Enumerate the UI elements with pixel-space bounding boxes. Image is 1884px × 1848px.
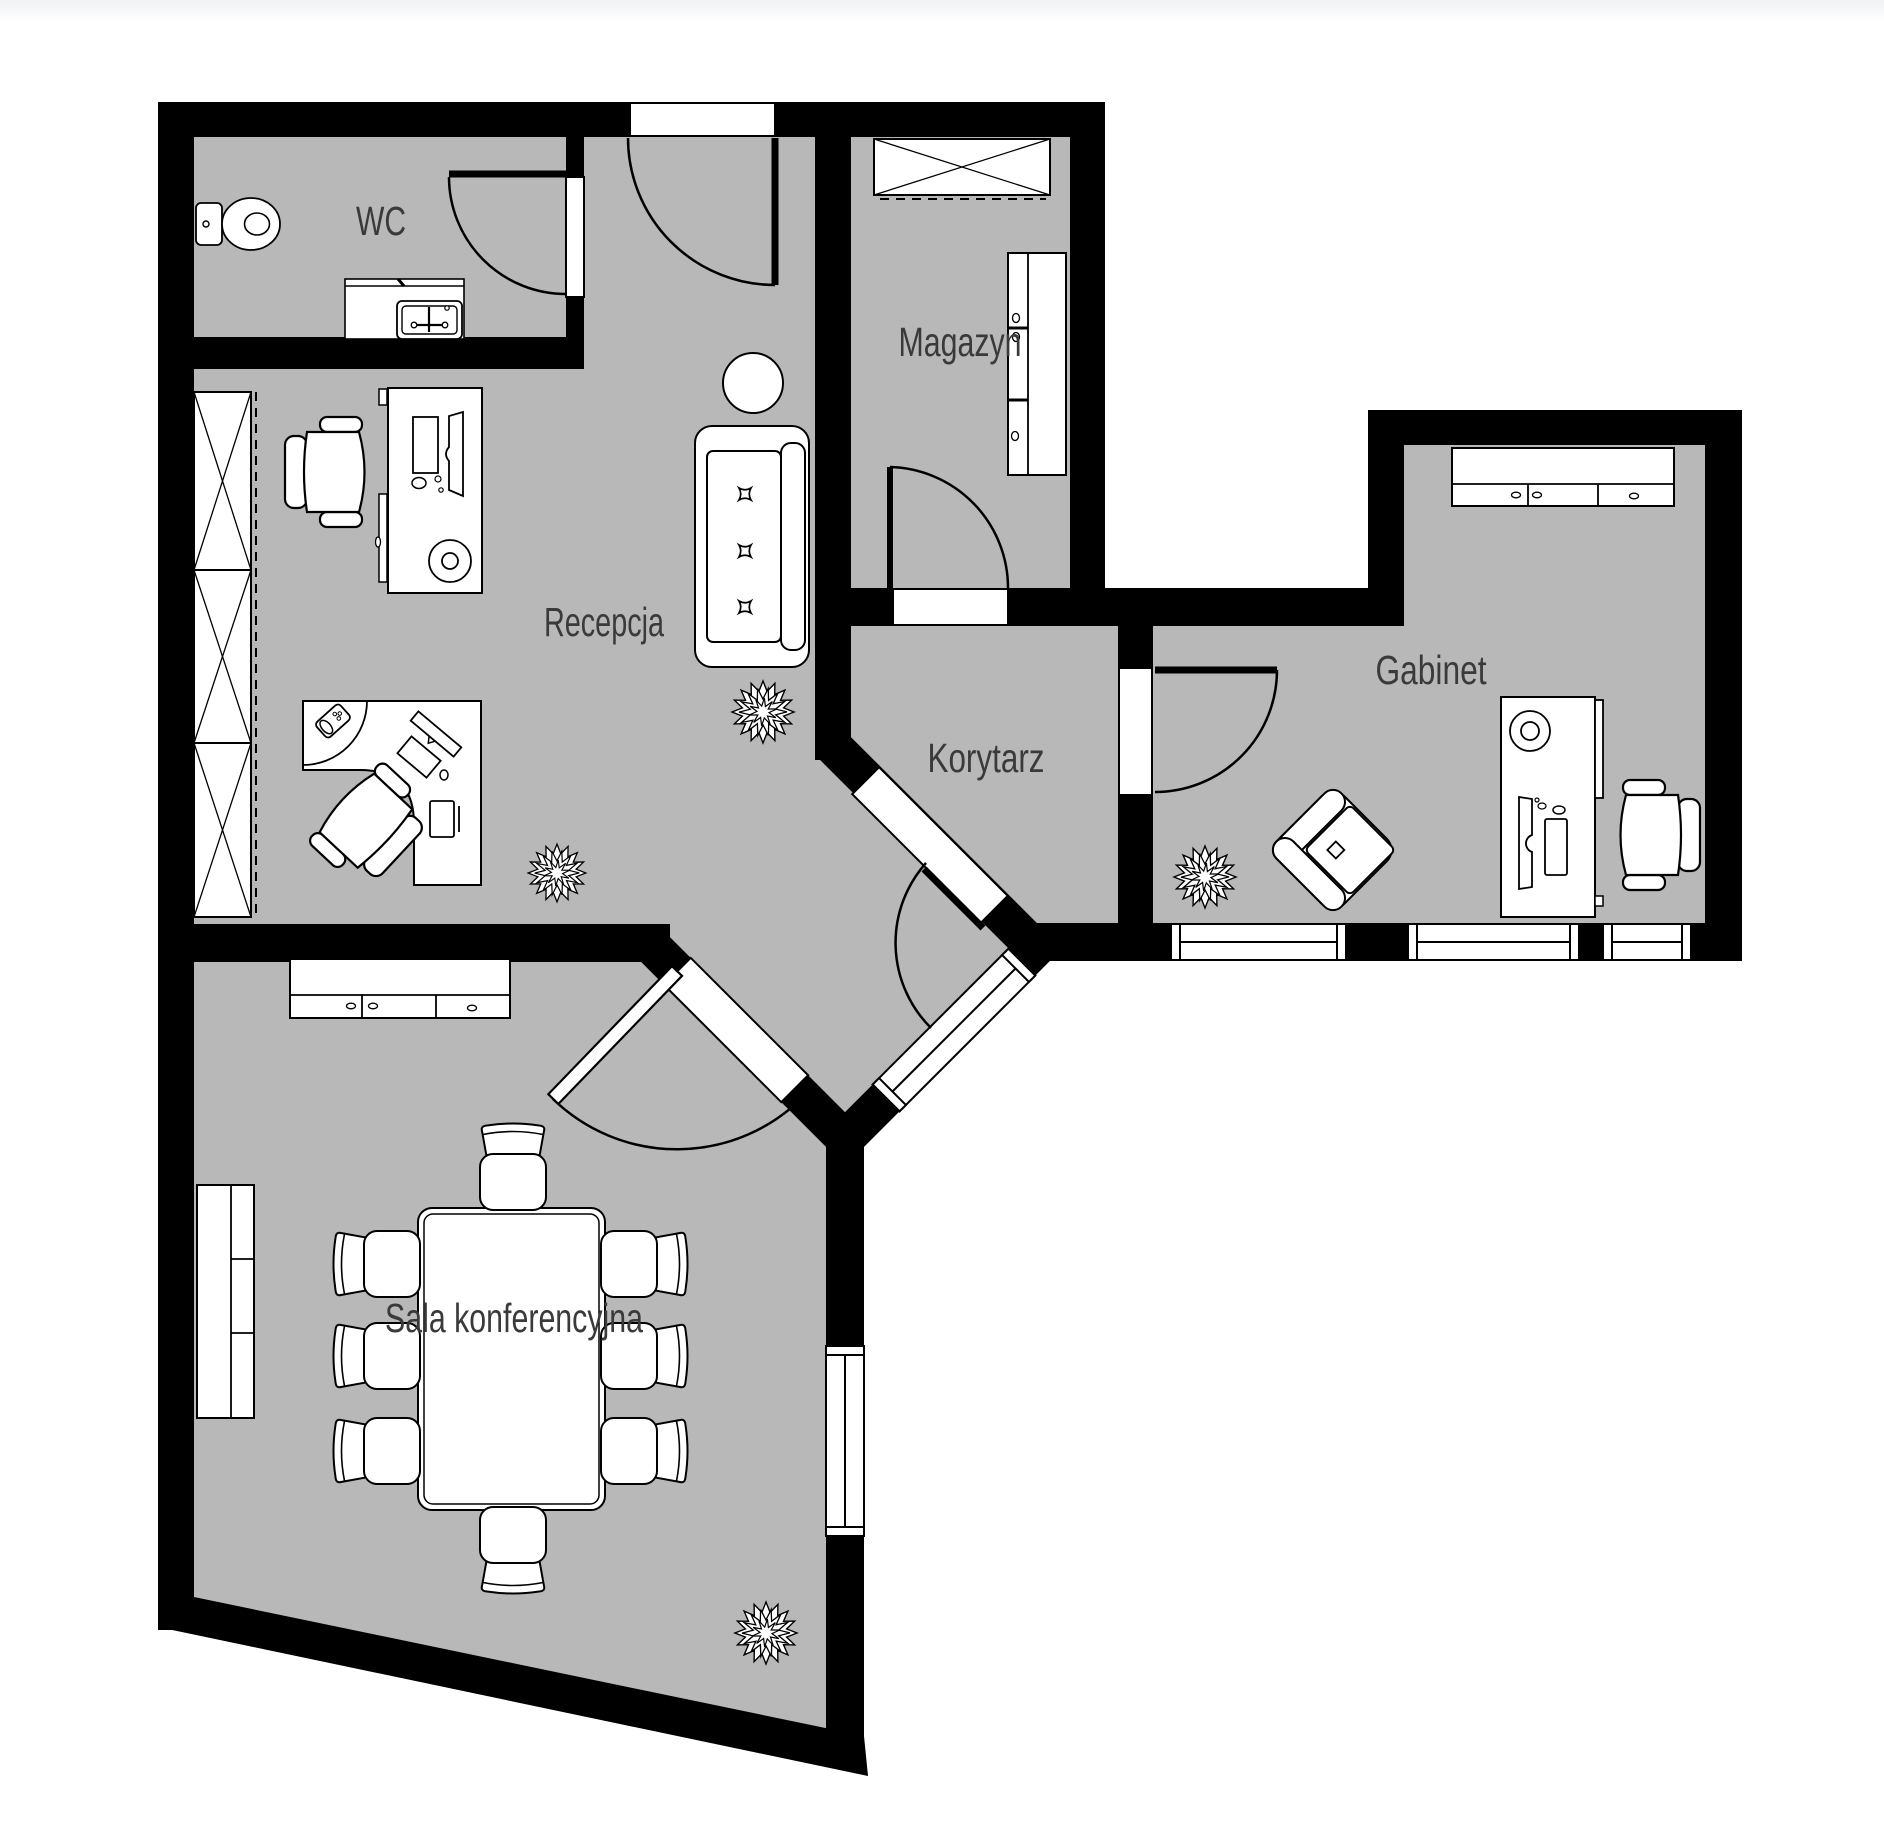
svg-text:Sala konferencyjna: Sala konferencyjna bbox=[385, 1295, 643, 1341]
svg-text:Magazyn: Magazyn bbox=[899, 319, 1022, 365]
svg-text:WC: WC bbox=[356, 198, 406, 244]
svg-text:Korytarz: Korytarz bbox=[928, 735, 1045, 781]
svg-text:Gabinet: Gabinet bbox=[1376, 647, 1487, 693]
svg-text:Recepcja: Recepcja bbox=[544, 599, 664, 645]
